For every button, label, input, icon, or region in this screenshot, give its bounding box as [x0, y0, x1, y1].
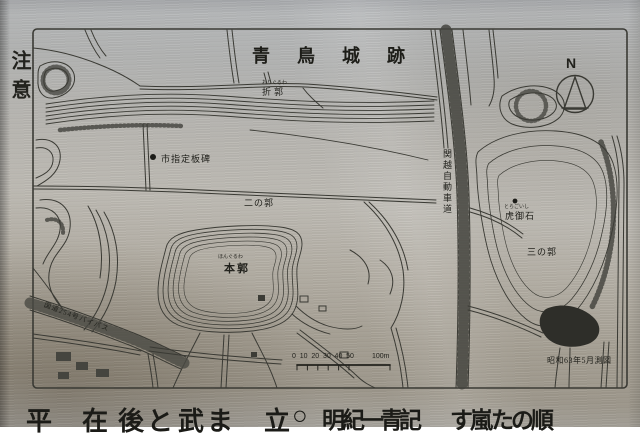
map-title: 青鳥城跡 [252, 42, 432, 68]
scale-num: 30 [323, 353, 331, 360]
label-kanetsu-expressway: 関越自動車道 [441, 149, 454, 215]
label-san-no-kuruwa: 三の郭 [527, 245, 557, 258]
scale-bar-numbers: 0 10 20 30 40 50 [292, 353, 354, 360]
scale-num: 40 [335, 353, 343, 360]
bottom-char: 武 [178, 401, 204, 438]
scale-num: 0 [292, 353, 296, 360]
metal-plaque: 注意 青鳥城跡 N おりぐるわ 折郭 市指定板碑 二の郭 ほんぐるわ 本郭 関越… [0, 0, 640, 427]
itahi-marker-dot [150, 154, 156, 160]
notice-vertical-text: 注意 [5, 50, 34, 108]
pond-fill [540, 306, 600, 347]
label-ni-no-kuruwa: 二の郭 [244, 196, 274, 209]
bottom-char: 後 [118, 401, 144, 438]
bottom-char: 在 [82, 401, 108, 438]
scale-num: 50 [346, 353, 354, 360]
east-contours [468, 30, 624, 388]
survey-date: 昭和63年5月測図 [547, 355, 612, 366]
label-ori-kuruwa: 折郭 [262, 85, 286, 98]
top-left-contours [33, 30, 140, 98]
itahi-road [143, 124, 156, 190]
bottom-char: ま [207, 401, 233, 438]
compass-n-label: N [566, 55, 576, 71]
label-tora-go-ishi: 虎御石 [505, 209, 535, 222]
bottom-char: 立 [264, 401, 290, 438]
compass-rose-art [557, 76, 594, 113]
bottom-char: 順 [531, 401, 554, 435]
label-itahi: 市指定板碑 [161, 152, 211, 165]
scale-num: 10 [300, 353, 308, 360]
bottom-char: 記 [399, 401, 422, 435]
bailey-building-marker [258, 295, 265, 301]
scale-num: 20 [311, 353, 319, 360]
hon-kuruwa-furigana: ほんぐるわ [218, 253, 243, 260]
label-hon-kuruwa: 本郭 [224, 260, 250, 276]
bottom-char: 嵐 [470, 401, 493, 435]
terrace-band [46, 94, 434, 160]
main-bailey-contours [158, 226, 362, 334]
bottom-char: と [147, 401, 173, 438]
scale-bar-end-label: 100m [372, 353, 390, 360]
bottom-char: 平 [26, 401, 52, 438]
